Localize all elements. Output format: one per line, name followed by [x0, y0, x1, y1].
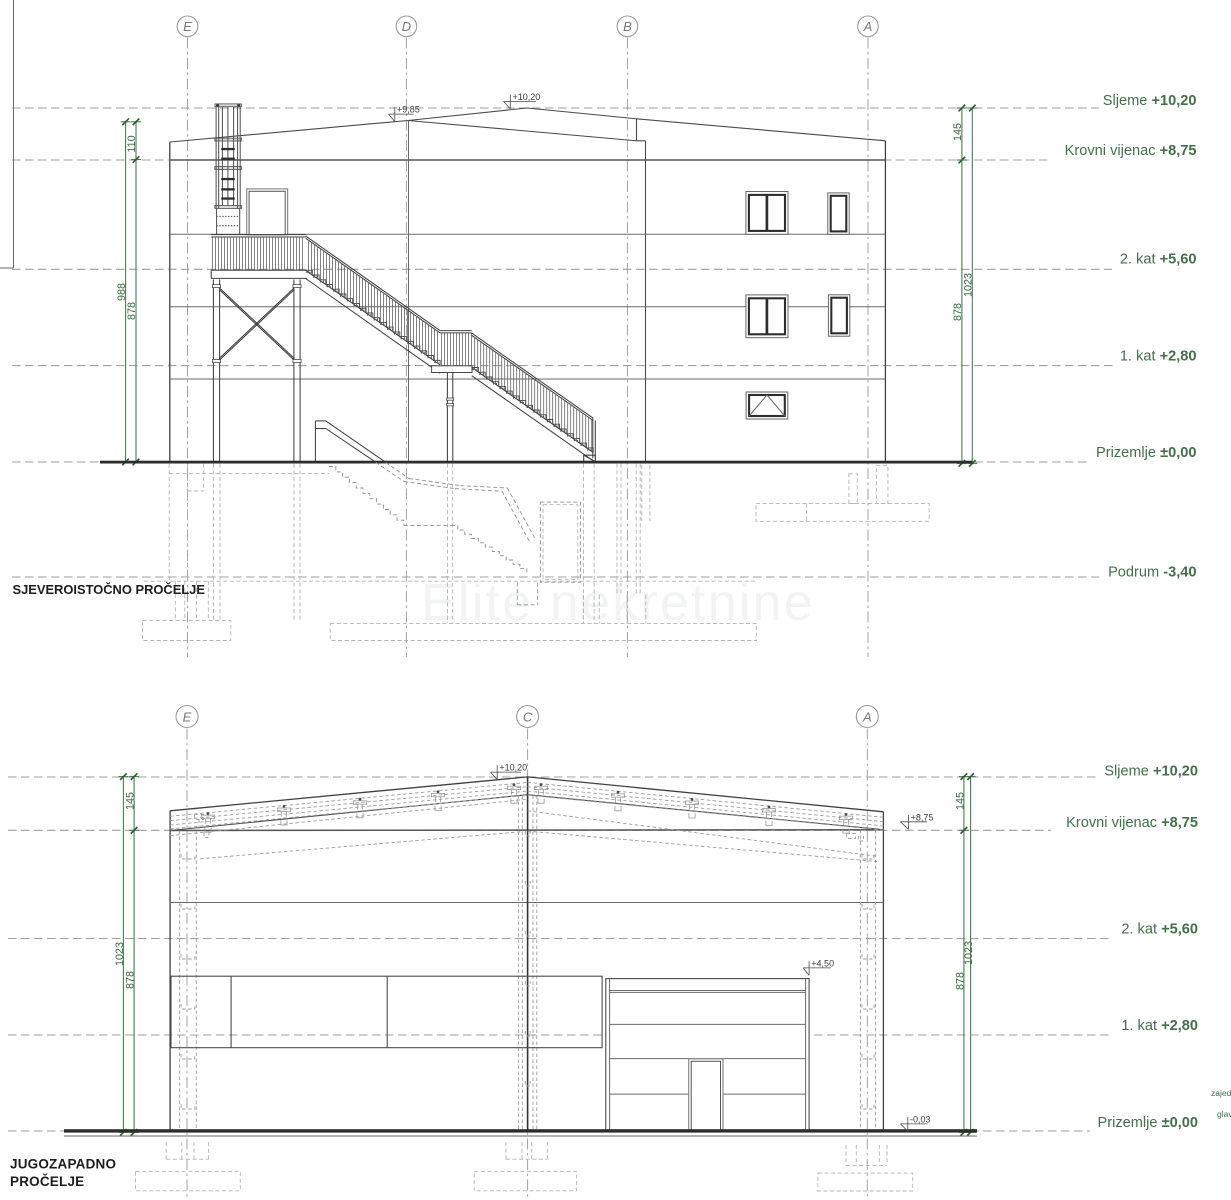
svg-text:878: 878 [126, 302, 138, 320]
svg-text:988: 988 [116, 283, 128, 301]
svg-text:145: 145 [124, 792, 136, 810]
svg-text:145: 145 [954, 792, 966, 810]
svg-text:+9,85: +9,85 [397, 105, 420, 115]
svg-text:A: A [863, 19, 873, 34]
svg-text:878: 878 [954, 972, 966, 990]
svg-text:SJEVEROISTOČNO PROČELJE: SJEVEROISTOČNO PROČELJE [13, 582, 206, 597]
svg-text:1. kat +2,80: 1. kat +2,80 [1121, 1018, 1198, 1034]
svg-text:1023: 1023 [114, 942, 126, 966]
svg-text:zajedn: zajedn [1211, 1088, 1231, 1098]
svg-text:Prizemlje ±0,00: Prizemlje ±0,00 [1096, 445, 1196, 461]
svg-text:1023: 1023 [963, 941, 975, 965]
svg-text:Podrum -3,40: Podrum -3,40 [1108, 565, 1196, 581]
svg-text:C: C [523, 709, 533, 724]
svg-text:B: B [623, 19, 632, 34]
svg-text:878: 878 [952, 303, 964, 321]
svg-text:145: 145 [952, 123, 964, 141]
svg-text:Sljeme +10,20: Sljeme +10,20 [1104, 764, 1198, 780]
svg-text:Prizemlje ±0,00: Prizemlje ±0,00 [1098, 1115, 1198, 1131]
svg-text:+8,75: +8,75 [911, 812, 934, 822]
svg-text:-0,03: -0,03 [910, 1115, 931, 1125]
svg-text:+10,20: +10,20 [499, 763, 527, 773]
svg-text:1023: 1023 [963, 273, 975, 297]
svg-text:878: 878 [124, 971, 136, 989]
svg-text:+4,50: +4,50 [811, 959, 834, 969]
svg-text:110: 110 [126, 135, 138, 152]
svg-text:+10,20: +10,20 [513, 92, 541, 102]
svg-text:A: A [862, 709, 872, 724]
svg-text:PROČELJE: PROČELJE [10, 1174, 84, 1189]
svg-text:Krovni vijenac +8,75: Krovni vijenac +8,75 [1065, 143, 1197, 159]
svg-text:Sljeme +10,20: Sljeme +10,20 [1103, 93, 1197, 109]
svg-text:JUGOZAPADNO: JUGOZAPADNO [10, 1157, 116, 1172]
svg-text:D: D [402, 19, 411, 34]
svg-text:E: E [183, 709, 192, 724]
svg-text:1. kat +2,80: 1. kat +2,80 [1120, 349, 1197, 365]
svg-text:2. kat +5,60: 2. kat +5,60 [1121, 922, 1198, 938]
svg-text:glavn: glavn [1217, 1109, 1231, 1119]
svg-text:Krovni vijenac +8,75: Krovni vijenac +8,75 [1066, 815, 1198, 831]
svg-text:E: E [183, 19, 192, 34]
svg-text:2. kat +5,60: 2. kat +5,60 [1120, 252, 1197, 268]
